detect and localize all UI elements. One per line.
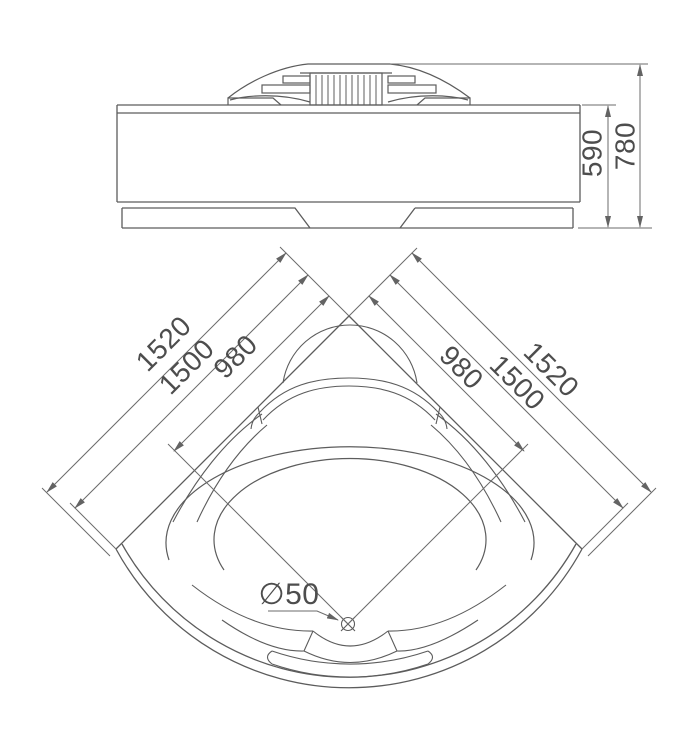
bathtub-technical-drawing: 590 780 <box>0 0 693 735</box>
dim-label-total-height: 780 <box>609 122 640 170</box>
dim-label-inner-height: 590 <box>576 129 607 177</box>
dim-label-drain-diameter: ∅50 <box>258 578 319 611</box>
